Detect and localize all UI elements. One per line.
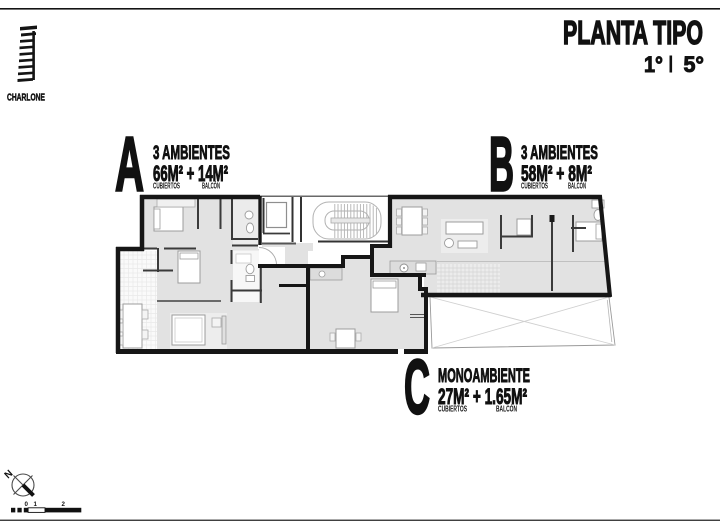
svg-text:C: C <box>404 345 430 431</box>
svg-text:BALCÓN: BALCÓN <box>568 182 586 191</box>
svg-text:PLANTA TIPO: PLANTA TIPO <box>563 14 703 51</box>
svg-text:CHARLONE: CHARLONE <box>7 92 45 104</box>
svg-text:1: 1 <box>34 501 38 508</box>
svg-text:BALCÓN: BALCÓN <box>202 182 220 191</box>
svg-text:0: 0 <box>25 501 29 508</box>
svg-text:BALCÓN: BALCÓN <box>496 405 517 414</box>
svg-text:5°: 5° <box>684 52 705 77</box>
svg-text:1°: 1° <box>644 52 663 77</box>
svg-text:B: B <box>489 122 514 208</box>
svg-text:A: A <box>115 122 144 208</box>
svg-text:CUBIERTOS: CUBIERTOS <box>438 405 467 414</box>
svg-text:CUBIERTOS: CUBIERTOS <box>153 182 180 191</box>
svg-text:2: 2 <box>62 501 66 508</box>
svg-text:CUBIERTOS: CUBIERTOS <box>521 182 548 191</box>
